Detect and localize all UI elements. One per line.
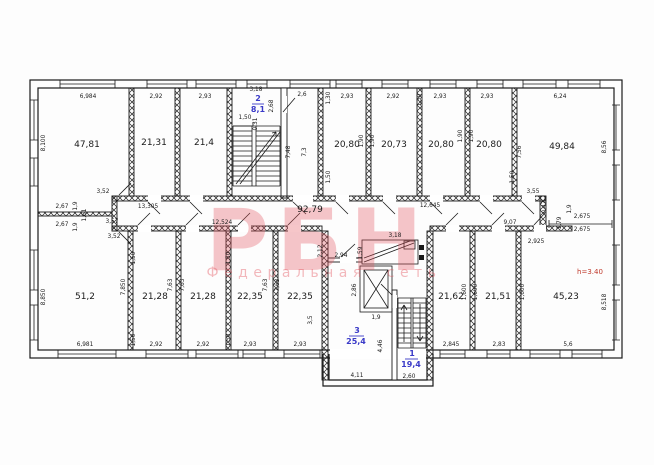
dimension-label: 2,93: [199, 94, 212, 100]
dimension-label: 1,50: [226, 251, 232, 264]
room-area-label: 49,84: [549, 142, 575, 152]
west-partition-wall: [38, 212, 112, 216]
dimension-label: 1,50: [239, 115, 252, 121]
dimension-label: 2,67: [56, 204, 69, 210]
dimension-label: 1,90: [469, 129, 475, 142]
dimension-label: 1,9: [567, 204, 573, 214]
stairwell-lower: [398, 298, 426, 348]
dimension-label: 3,18: [389, 233, 402, 239]
dimension-label: 3,52: [108, 234, 121, 240]
dimension-label: 2,93: [294, 342, 307, 348]
room-area-label: 20,80: [428, 140, 454, 150]
dimension-label: 4,11: [351, 373, 364, 379]
flat-number-label: 19,4: [401, 360, 421, 369]
room-area-label: 20,80: [476, 140, 502, 150]
dimension-label: 2,925: [528, 239, 545, 245]
dimension-label: 1,9: [73, 222, 79, 232]
dimension-label: 1,79: [557, 216, 563, 229]
flat-number-label: 1: [409, 349, 415, 358]
dimension-label: 2,92: [150, 342, 163, 348]
dimension-label: 0,31: [253, 117, 259, 130]
dimension-label: 9,07: [504, 220, 517, 226]
flat-number-label: 8,1: [251, 105, 266, 114]
left-wall-windows: [30, 100, 38, 340]
room-area-label: 21,28: [190, 292, 216, 302]
dimension-label: 3,5: [308, 315, 314, 325]
right-wall-windows: [612, 105, 620, 340]
dimension-label: 3,18: [250, 87, 263, 93]
dimension-label: 1,50: [131, 251, 137, 264]
stair-arrow-down: [417, 304, 423, 341]
room-area-label: 45,23: [553, 292, 579, 302]
dimension-label: 8,850: [41, 288, 47, 305]
dimension-label: 0,47: [542, 200, 548, 213]
dimension-label: 5,6: [563, 342, 573, 348]
flat-number-label: 25,4: [346, 337, 366, 346]
room-area-label: 22,35: [287, 292, 313, 302]
watermark: РБН Федеральная сеть: [206, 191, 442, 291]
dimension-label: 2,83: [493, 342, 506, 348]
room-area-label: 20,73: [381, 140, 407, 150]
room-area-label: 20,80: [334, 140, 360, 150]
dimension-label: 3,57: [106, 219, 119, 225]
dimension-label: 2,86: [352, 283, 358, 296]
dimension-label: 12,645: [420, 203, 441, 209]
dimension-label: 13,305: [138, 204, 159, 210]
room-area-label: 21,28: [142, 292, 168, 302]
floor-plan-drawing: РБН Федеральная сеть 47,8121,3121,420,80…: [0, 0, 654, 465]
dimension-label: 2,68: [269, 99, 275, 112]
dimension-label: 4,46: [378, 339, 384, 352]
dimension-label: 1,50: [226, 333, 232, 346]
dimension-label: 7,3: [302, 147, 308, 157]
dimension-label: 2,92: [387, 94, 400, 100]
dimension-label: 7,63: [263, 278, 269, 291]
dimension-label: 6,24: [554, 94, 567, 100]
dimension-label: 2,675: [574, 214, 591, 220]
dimension-label: 1,90: [359, 134, 365, 147]
dimension-label: 1,90: [458, 129, 464, 142]
dimension-label: 1,30: [326, 91, 332, 104]
watermark-tagline: Федеральная сеть: [207, 265, 442, 281]
stair-arrow-up: [401, 305, 407, 342]
dimension-label: 8,100: [41, 134, 47, 151]
dimension-label: 2,12: [318, 244, 324, 257]
room-area-label: 92,79: [297, 205, 323, 215]
dimension-label: 1,59: [358, 246, 364, 259]
dimension-label: 7,48: [286, 145, 292, 158]
dimension-label: 7,56: [517, 145, 523, 158]
dimension-label: 1,600: [473, 283, 479, 300]
dimension-label: 7,850: [121, 278, 127, 295]
dimension-label: 8,518: [602, 293, 608, 310]
dimension-label: 1,9: [371, 315, 381, 321]
dimension-label: 1,50: [131, 333, 137, 346]
flat-number-label: 3: [354, 326, 360, 335]
dimension-label: 1,30: [417, 93, 423, 106]
room-area-label: 21,4: [194, 138, 214, 148]
dimension-label: 2,92: [197, 342, 210, 348]
room-area-label: 47,81: [74, 140, 100, 150]
dimension-label: 1,50: [510, 170, 516, 183]
dimension-label: 1,50: [326, 170, 332, 183]
dimension-label: 2,67: [56, 222, 69, 228]
dimension-label: 3,52: [97, 189, 110, 195]
floor-plan-page: РБН Федеральная сеть 47,8121,3121,420,80…: [0, 0, 654, 465]
dimension-label: 2,93: [244, 342, 257, 348]
dimension-label: 2,93: [481, 94, 494, 100]
dimension-label: 2,93: [434, 94, 447, 100]
room-area-label: 21,62: [438, 292, 464, 302]
room-area-label: 21,51: [485, 292, 511, 302]
room-area-label: 51,2: [75, 292, 95, 302]
dimension-label: 1,90: [370, 134, 376, 147]
room-area-label: 21,31: [141, 138, 167, 148]
dimension-label: 1,600: [520, 283, 526, 300]
dimension-label: 1,61: [82, 208, 88, 221]
dimension-label: 2,94: [335, 253, 348, 259]
flat-number-label: 2: [255, 94, 261, 103]
dimension-label: 6,981: [77, 342, 94, 348]
top-wall-windows: [60, 80, 600, 88]
dimension-label: 2,845: [443, 342, 460, 348]
dimension-label: 12,524: [212, 220, 233, 226]
dimension-label: 8,56: [602, 140, 608, 153]
dimension-label: 7,63: [168, 278, 174, 291]
dimension-label: 2,6: [297, 92, 307, 98]
dimension-label: 3,55: [527, 189, 540, 195]
dimension-label: 2,675: [574, 227, 591, 233]
dimension-label: 1,600: [462, 283, 468, 300]
dimension-label: 6,984: [80, 94, 97, 100]
stairwell-upper: [233, 122, 280, 186]
dimension-label: 2,93: [341, 94, 354, 100]
dimension-label: 2,60: [403, 374, 416, 380]
ceiling-height-label: h=3.40: [577, 268, 603, 276]
dimension-label: 2,92: [150, 94, 163, 100]
room-area-label: 22,35: [237, 292, 263, 302]
dimension-label: 7,63: [180, 278, 186, 291]
dimension-label: 7,63: [275, 278, 281, 291]
dimension-label: 1,9: [73, 201, 79, 211]
